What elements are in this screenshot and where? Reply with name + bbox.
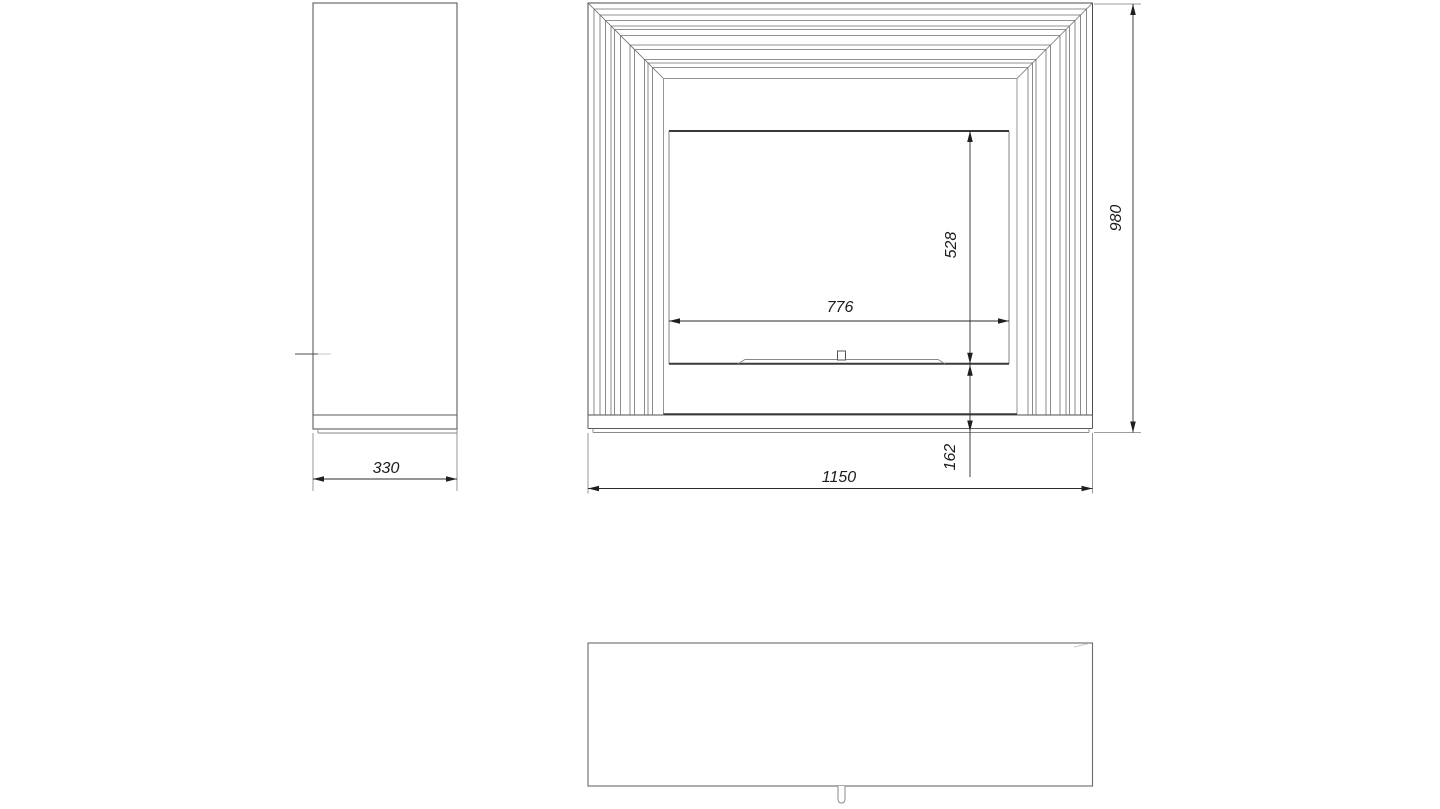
arrowhead-bottom (967, 353, 973, 364)
arrowhead-right (1082, 486, 1093, 492)
top-corner-mark (1074, 644, 1089, 648)
dimension-opening-height: 528 (943, 131, 973, 364)
arrowhead-top (967, 365, 973, 376)
dim-label-opening-width: 776 (827, 299, 854, 316)
dimension-overall-height: 980 (1094, 4, 1141, 433)
front-view: 980 528 162 776 (588, 3, 1141, 494)
fireplace-technical-drawing: 330 (0, 0, 1440, 809)
arrowhead-right (998, 318, 1009, 324)
arrowhead-top (1130, 4, 1136, 15)
arrowhead-left (313, 476, 324, 482)
dimension-opening-width: 776 (669, 299, 1009, 324)
top-view (588, 643, 1093, 803)
arrowhead-right (446, 476, 457, 482)
arrowhead-bottom (1130, 422, 1136, 433)
front-base (588, 415, 1093, 433)
arrowhead-left (669, 318, 680, 324)
side-body-outline (313, 3, 457, 429)
dim-label-overall-width: 1150 (822, 469, 857, 486)
dim-label-side-depth: 330 (373, 460, 400, 477)
side-view: 330 (295, 3, 457, 491)
arrowhead-top (967, 131, 973, 142)
top-body-outline (588, 643, 1093, 786)
dimension-overall-width: 1150 (588, 433, 1093, 494)
top-knob-tab (838, 786, 845, 803)
dimension-side-depth: 330 (313, 433, 457, 491)
arrowhead-left (588, 486, 599, 492)
dim-label-overall-height: 980 (1108, 205, 1125, 232)
dimension-base-height: 162 (942, 364, 973, 477)
burner-slider-knob (838, 351, 846, 360)
dim-label-opening-height: 528 (943, 232, 960, 259)
arrowhead-bottom (967, 421, 973, 432)
drawing-sheet: 330 (0, 0, 1440, 809)
mitre-diagonal-left (588, 3, 664, 79)
mitre-diagonal-right (1017, 3, 1093, 79)
dim-label-base-height: 162 (942, 444, 959, 471)
